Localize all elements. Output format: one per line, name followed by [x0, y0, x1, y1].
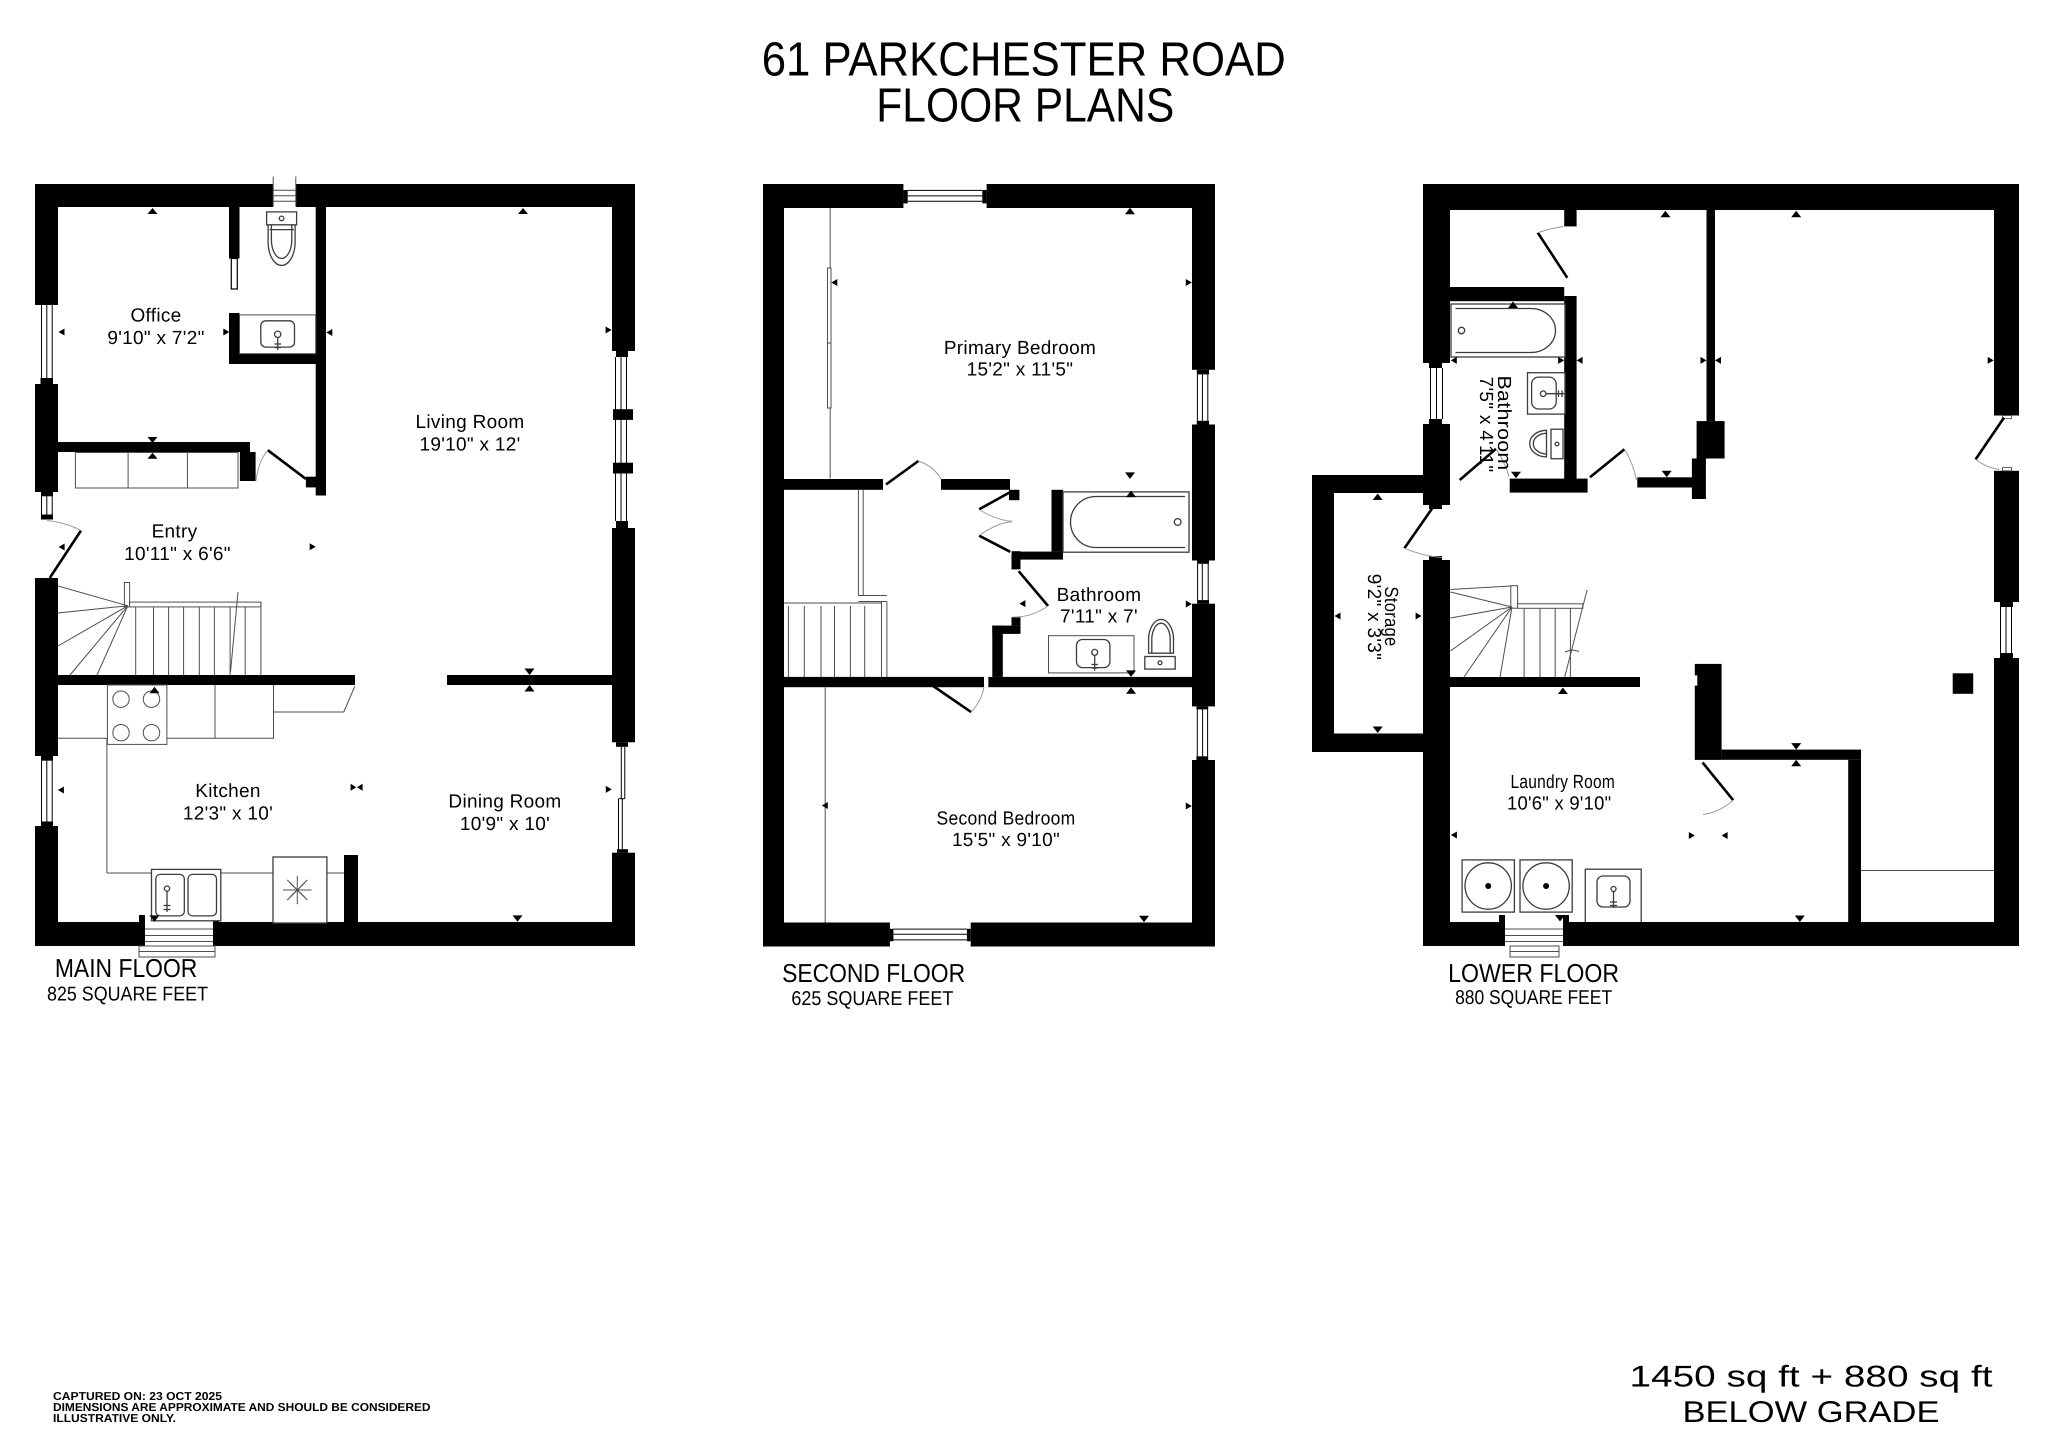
svg-text:880 SQUARE FEET: 880 SQUARE FEET — [1455, 987, 1612, 1009]
svg-text:10'6" x 9'10": 10'6" x 9'10" — [1507, 794, 1612, 815]
svg-text:Bathroom: Bathroom — [1057, 585, 1142, 606]
svg-text:ILLUSTRATIVE ONLY.: ILLUSTRATIVE ONLY. — [53, 1413, 176, 1425]
svg-text:FLOOR PLANS: FLOOR PLANS — [876, 80, 1174, 133]
svg-text:15'2" x 11'5": 15'2" x 11'5" — [967, 360, 1074, 381]
svg-text:19'10" x 12': 19'10" x 12' — [419, 434, 520, 455]
svg-text:7'5" x 4'11": 7'5" x 4'11" — [1475, 377, 1496, 473]
svg-text:Living Room: Living Room — [416, 412, 525, 433]
svg-text:CAPTURED ON: 23 OCT 2025: CAPTURED ON: 23 OCT 2025 — [53, 1391, 223, 1403]
svg-text:10'9" x 10': 10'9" x 10' — [460, 814, 550, 835]
svg-text:Laundry Room: Laundry Room — [1511, 772, 1616, 793]
svg-text:Dining Room: Dining Room — [448, 792, 561, 813]
svg-text:10'11" x 6'6": 10'11" x 6'6" — [124, 544, 231, 565]
svg-text:1450 sq ft + 880 sq ft: 1450 sq ft + 880 sq ft — [1630, 1360, 1994, 1393]
svg-text:9'2" x 3'3": 9'2" x 3'3" — [1363, 574, 1384, 660]
svg-text:625 SQUARE FEET: 625 SQUARE FEET — [791, 988, 953, 1010]
svg-text:61 PARKCHESTER ROAD: 61 PARKCHESTER ROAD — [762, 34, 1286, 87]
svg-text:BELOW GRADE: BELOW GRADE — [1683, 1396, 1940, 1429]
svg-text:Second Bedroom: Second Bedroom — [937, 809, 1076, 830]
svg-text:Entry: Entry — [152, 522, 198, 543]
svg-text:Kitchen: Kitchen — [195, 781, 260, 802]
svg-text:SECOND FLOOR: SECOND FLOOR — [782, 958, 965, 988]
svg-text:15'5" x 9'10": 15'5" x 9'10" — [952, 830, 1060, 851]
svg-text:9'10" x 7'2": 9'10" x 7'2" — [107, 328, 204, 349]
svg-text:MAIN FLOOR: MAIN FLOOR — [55, 953, 198, 983]
svg-text:12'3" x 10': 12'3" x 10' — [183, 803, 273, 824]
svg-text:825 SQUARE FEET: 825 SQUARE FEET — [47, 984, 208, 1006]
svg-text:7'11" x 7': 7'11" x 7' — [1060, 607, 1138, 628]
svg-text:LOWER FLOOR: LOWER FLOOR — [1448, 958, 1619, 988]
svg-text:DIMENSIONS ARE APPROXIMATE AND: DIMENSIONS ARE APPROXIMATE AND SHOULD BE… — [53, 1402, 431, 1414]
svg-text:Office: Office — [130, 306, 181, 327]
svg-text:Primary Bedroom: Primary Bedroom — [944, 338, 1096, 359]
